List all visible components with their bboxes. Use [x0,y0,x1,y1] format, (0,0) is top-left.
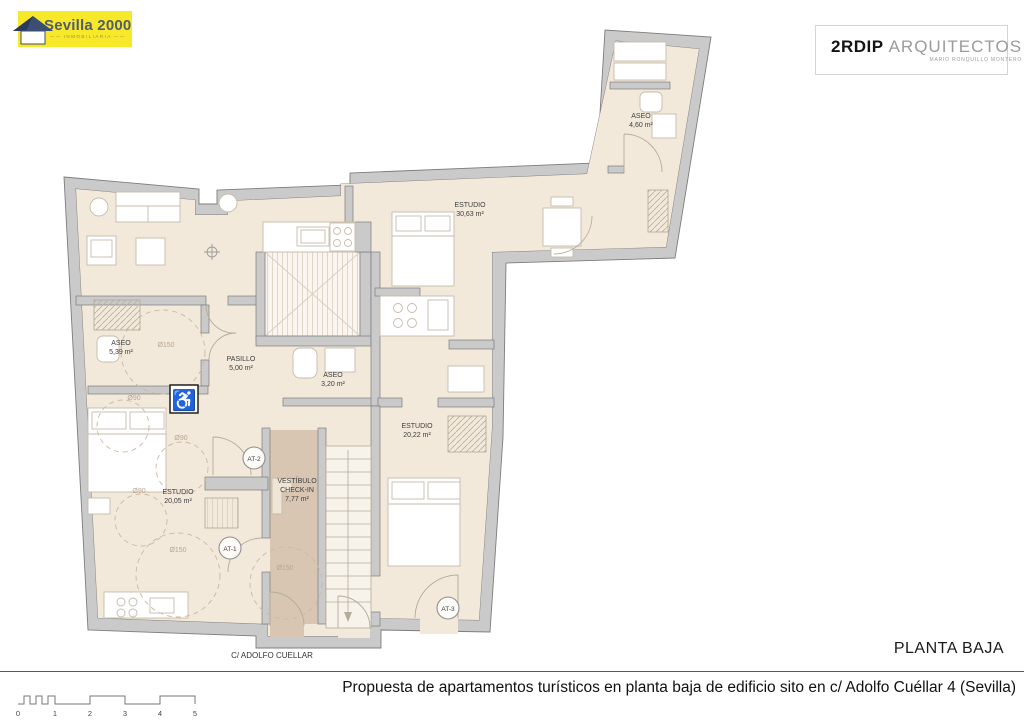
footer-divider [0,671,1024,672]
architect-name-light: ARQUITECTOS [889,38,1022,55]
svg-text:2: 2 [88,709,92,718]
unit-label-at1: AT-1 [223,546,237,553]
svg-text:Ø150: Ø150 [157,342,174,349]
svg-text:4: 4 [158,709,162,718]
svg-text:ESTUDIO: ESTUDIO [162,489,194,496]
svg-text:Ø90: Ø90 [174,435,187,442]
svg-text:1: 1 [53,709,57,718]
svg-text:PASILLO: PASILLO [227,356,256,363]
svg-text:30,63 m²: 30,63 m² [456,211,484,218]
svg-text:ESTUDIO: ESTUDIO [454,202,486,209]
street-label: C/ ADOLFO CUELLAR [231,651,313,660]
svg-text:5,00 m²: 5,00 m² [229,365,253,372]
svg-text:5,39 m²: 5,39 m² [109,349,133,356]
vestibule-entry-floor [270,622,304,638]
architect-name-bold: 2RDIP [831,38,884,55]
svg-text:Ø90: Ø90 [127,395,140,402]
svg-text:ASEO: ASEO [111,340,131,347]
architect-logo: 2RDIP ARQUITECTOS MARIO RONQUILLO MONTER… [815,25,1008,75]
svg-text:20,05 m²: 20,05 m² [164,498,192,505]
house-icon [12,13,54,47]
agency-tagline: INMOBILIARIA [44,35,131,40]
svg-text:ASEO: ASEO [631,113,651,120]
svg-text:4,60 m²: 4,60 m² [629,122,653,129]
svg-text:♿: ♿ [172,388,197,412]
svg-text:5: 5 [193,709,197,718]
svg-text:Ø150: Ø150 [276,565,293,572]
svg-text:ASEO: ASEO [323,372,343,379]
svg-text:CHECK-IN: CHECK-IN [280,487,314,494]
svg-text:ESTUDIO: ESTUDIO [401,423,433,430]
architect-subtitle: MARIO RONQUILLO MONTERO [831,58,1022,63]
svg-text:3: 3 [123,709,127,718]
svg-text:20,22 m²: 20,22 m² [403,432,431,439]
wheelchair-icon: ♿ [170,385,198,413]
floor-title: PLANTA BAJA [894,640,1004,658]
agency-logo: Sevilla 2000 INMOBILIARIA [18,11,132,47]
svg-text:Ø90: Ø90 [132,488,145,495]
svg-text:7,77 m²: 7,77 m² [285,496,309,503]
staircase [326,446,371,628]
unit-label-at2: AT-2 [247,456,261,463]
scale-bar: 0 1 2 3 4 5 [16,696,197,718]
svg-text:VESTÍBULO: VESTÍBULO [277,476,317,485]
unit-label-at3: AT-3 [441,606,455,613]
floor-plan-drawing: ♿ AT-1 AT-2 AT-3 ASEO4,60 m² ESTUDIO30,6… [0,0,1024,724]
svg-text:3,20 m²: 3,20 m² [321,381,345,388]
light-well [265,252,360,336]
vestibule-floor [270,430,318,624]
svg-text:0: 0 [16,709,20,718]
agency-name: Sevilla 2000 [44,18,131,33]
svg-text:Ø150: Ø150 [169,547,186,554]
drawing-title: Propuesta de apartamentos turísticos en … [342,679,1016,697]
